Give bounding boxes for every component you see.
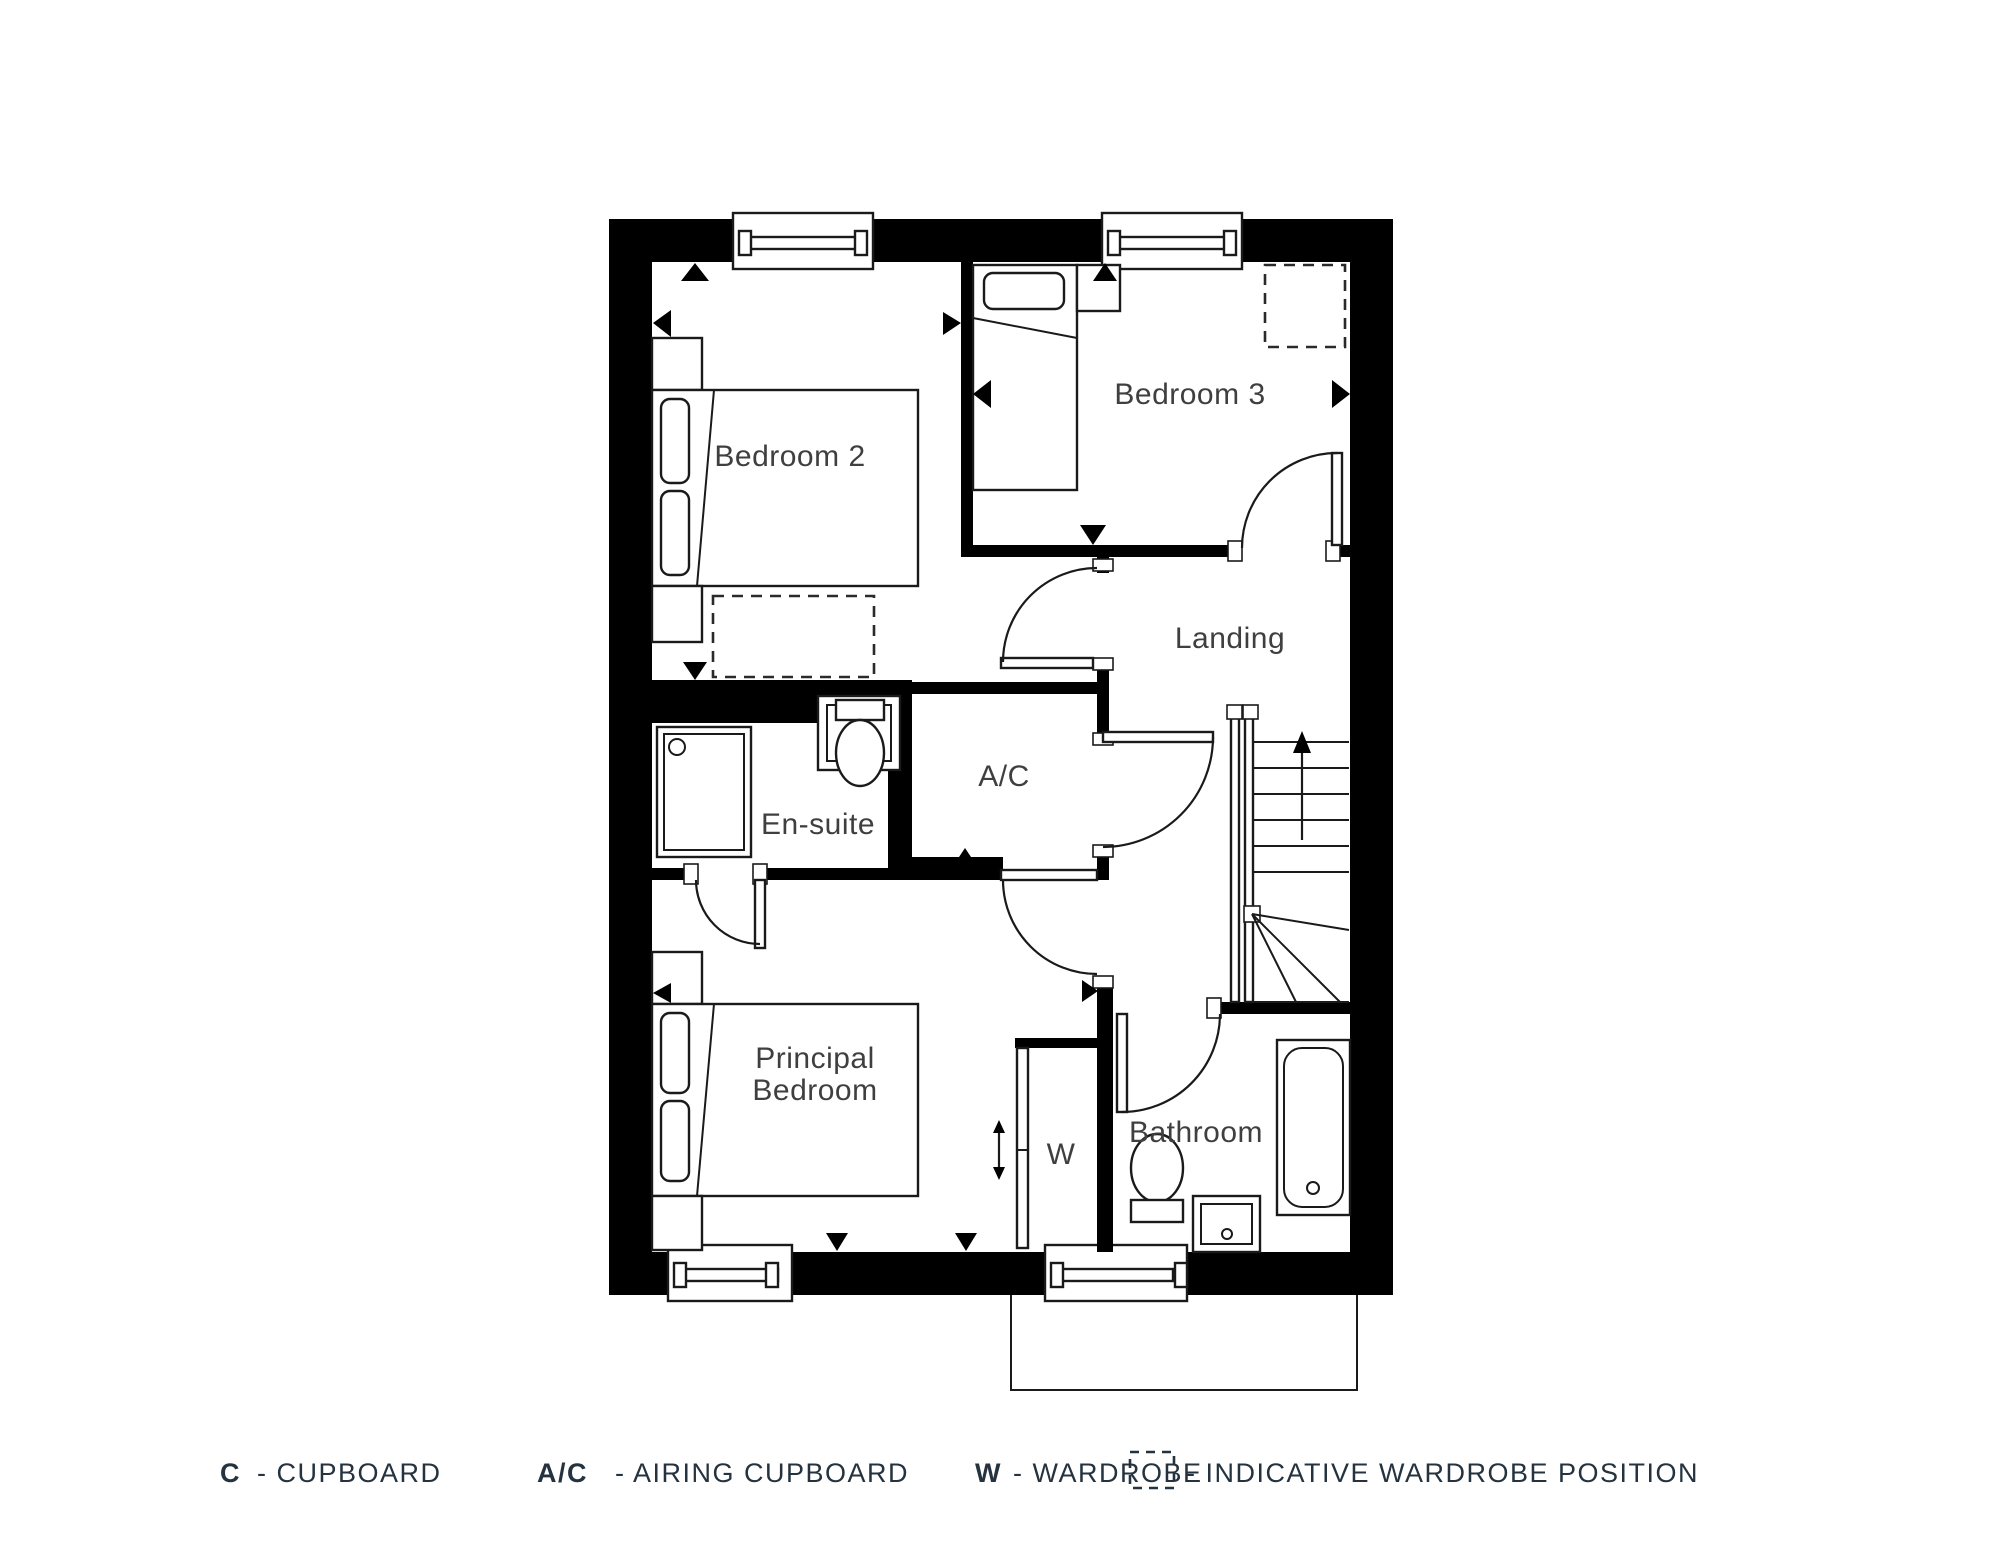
wall-airing-cupboard-right-top <box>1097 694 1109 737</box>
window-cap <box>1051 1263 1063 1287</box>
legend-key-airing-cupboard: A/C <box>537 1458 588 1488</box>
porch-outline <box>1011 1295 1357 1390</box>
room-bedroom2: Bedroom 2 <box>652 338 918 677</box>
room-label-wardrobe: W <box>1047 1138 1076 1171</box>
room-label-landing: Landing <box>1175 622 1285 655</box>
wall-ensuite-bottom-right <box>757 868 888 880</box>
door-swing-arc <box>1003 880 1097 974</box>
outer-wall-top <box>609 219 1393 262</box>
window-glazing <box>1059 1269 1173 1281</box>
window-cap <box>1175 1263 1187 1287</box>
room-label-bedroom2: Bedroom 2 <box>714 440 865 473</box>
door-jamb <box>1228 541 1242 561</box>
marker-triangle-down-icon <box>1080 525 1106 545</box>
indicative-wardrobe-box <box>713 596 874 677</box>
pillow <box>984 273 1064 309</box>
stair-newel-cap <box>1227 705 1242 719</box>
window-cap <box>674 1263 686 1287</box>
stairs <box>1227 705 1349 1002</box>
door-leaf <box>1117 1014 1127 1112</box>
door-bedroom2 <box>1001 568 1097 668</box>
bedside-table <box>652 1196 702 1250</box>
outer-wall-right <box>1350 219 1393 1295</box>
door-leaf <box>1001 870 1097 880</box>
door-jamb <box>1093 658 1113 670</box>
toilet-bowl <box>836 720 884 786</box>
window-glazing <box>682 1269 778 1281</box>
door-bathroom <box>1117 1014 1220 1112</box>
door-swing-arc <box>1242 453 1337 548</box>
toilet-cistern <box>1131 1200 1183 1222</box>
wall-bedroom3-landing <box>961 545 1238 557</box>
pillow <box>661 491 689 575</box>
window-bathroom <box>1045 1245 1187 1301</box>
door-airing-cupboard <box>1103 732 1213 847</box>
room-principal-bedroom: Principal Bedroom <box>652 952 918 1250</box>
marker-triangle-down-icon <box>683 662 707 680</box>
door-swing-arc <box>696 880 760 944</box>
window-cap <box>1224 231 1236 255</box>
pillow <box>661 399 689 483</box>
room-label-airing-cupboard: A/C <box>978 760 1030 793</box>
pillow <box>661 1101 689 1181</box>
slide-arrow-down-icon <box>993 1167 1005 1180</box>
door-bedroom3 <box>1242 453 1342 548</box>
bedside-table <box>1077 265 1120 311</box>
bedside-table <box>652 338 702 390</box>
room-label-bedroom3: Bedroom 3 <box>1114 378 1265 411</box>
room-label-principal-line1: Principal <box>755 1042 875 1075</box>
window-cap <box>855 231 867 255</box>
wall-airing-cupboard-top <box>888 682 1109 694</box>
room-label-bathroom: Bathroom <box>1129 1116 1263 1149</box>
door-leaf <box>1103 732 1213 742</box>
door-jamb <box>1093 559 1113 571</box>
marker-triangle-down-icon <box>955 1233 977 1251</box>
room-bedroom3: Bedroom 3 <box>973 265 1345 490</box>
window-glazing <box>747 237 859 249</box>
wall-bedroom2-bedroom3 <box>961 262 973 545</box>
wall-wardrobe-top <box>1015 1038 1097 1048</box>
door-leaf <box>1332 453 1342 545</box>
room-label-principal-line2: Bedroom <box>752 1074 877 1107</box>
legend-label-airing-cupboard: - AIRING CUPBOARD <box>615 1458 909 1488</box>
indicative-wardrobe-box <box>1265 265 1345 347</box>
window-cap <box>766 1263 778 1287</box>
door-ensuite <box>696 880 765 948</box>
wardrobe-closet: W <box>993 1048 1076 1248</box>
double-bed <box>652 390 918 586</box>
room-label-ensuite: En-suite <box>761 808 875 841</box>
wall-bathroom-left <box>1097 1014 1113 1252</box>
door-jamb <box>1093 976 1113 988</box>
floorplan-page: Bedroom 2 Bedroom 3 Landing En-suite A/C… <box>0 0 2000 1561</box>
door-principal-bedroom <box>1001 870 1097 974</box>
legend-label-indicative-wardrobe: - INDICATIVE WARDROBE POSITION <box>1186 1458 1699 1488</box>
stair-railing <box>1231 716 1239 1002</box>
door-leaf <box>1001 658 1093 668</box>
legend: C - CUPBOARD A/C - AIRING CUPBOARD W - W… <box>220 1452 1699 1488</box>
legend-key-wardrobe: W <box>975 1458 1002 1488</box>
marker-triangle-up-icon <box>681 263 709 281</box>
window-bedroom2 <box>733 213 873 269</box>
stair-railing <box>1245 716 1253 1002</box>
marker-triangle-down-icon <box>826 1233 848 1251</box>
marker-triangle-right-icon <box>1332 380 1350 408</box>
window-cap <box>1108 231 1120 255</box>
legend-key-cupboard: C <box>220 1458 241 1488</box>
window-bedroom3 <box>1102 213 1242 269</box>
marker-triangle-right-icon <box>943 312 961 335</box>
toilet-cistern <box>836 700 884 720</box>
door-swing-arc <box>1103 737 1213 847</box>
wall-airing-cupboard-bottom <box>888 857 1003 880</box>
stair-newel-cap <box>1243 705 1258 719</box>
wall-bathroom-top <box>1213 1002 1350 1014</box>
door-swing-arc <box>1003 568 1097 662</box>
bedside-table <box>652 586 702 642</box>
stair-winder-treads <box>1252 914 1349 1002</box>
bath-outer <box>1277 1040 1350 1215</box>
door-leaf <box>755 880 765 948</box>
legend-label-cupboard: - CUPBOARD <box>257 1458 442 1488</box>
floorplan-drawing: Bedroom 2 Bedroom 3 Landing En-suite A/C… <box>0 0 2000 1561</box>
door-swing-arc <box>1122 1014 1220 1112</box>
pillow <box>661 1013 689 1093</box>
wardrobe-sliding-door <box>1017 1048 1028 1248</box>
room-bathroom: Bathroom <box>1129 1040 1350 1252</box>
window-principal-bedroom <box>668 1245 792 1301</box>
window-cap <box>739 231 751 255</box>
marker-triangle-left-icon <box>653 310 671 337</box>
shower <box>657 727 751 857</box>
window-glazing <box>1116 237 1228 249</box>
slide-arrow-up-icon <box>993 1120 1005 1133</box>
outer-wall-left <box>609 219 652 1295</box>
